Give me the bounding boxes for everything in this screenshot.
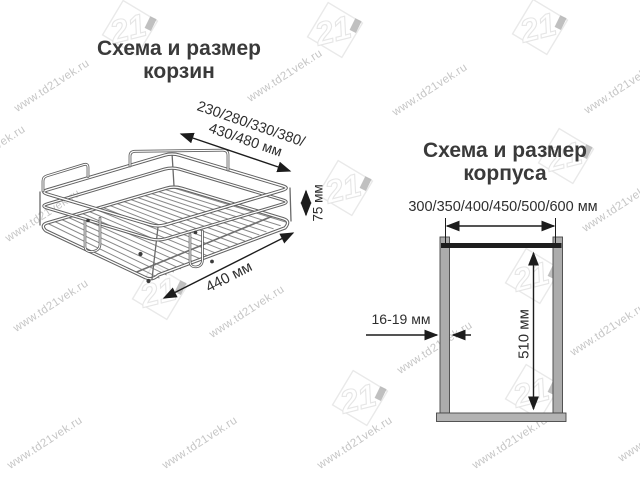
cabinet-bottom-panel bbox=[437, 413, 567, 422]
cabinet-width-dimension-label: 300/350/400/450/500/600 мм bbox=[408, 199, 597, 215]
basket-section-title: Схема и размер корзин bbox=[93, 37, 265, 83]
cabinet-section-title: Схема и размер корпуса bbox=[419, 139, 591, 185]
cabinet-drawing bbox=[437, 237, 567, 422]
basket-drawing bbox=[40, 150, 291, 283]
diagram-page: www.td21vek.ruwww.td21vek.ruwww.td21vek.… bbox=[0, 0, 640, 480]
cabinet-right-wall bbox=[553, 237, 563, 413]
basket-height-dimension-label: 75 мм bbox=[311, 184, 326, 221]
cabinet-height-dimension-label: 510 мм bbox=[516, 309, 533, 359]
cabinet-left-wall bbox=[440, 237, 450, 413]
cabinet-thickness-dimension-label: 16-19 мм bbox=[372, 311, 431, 327]
cabinet-top-rail bbox=[441, 243, 562, 248]
